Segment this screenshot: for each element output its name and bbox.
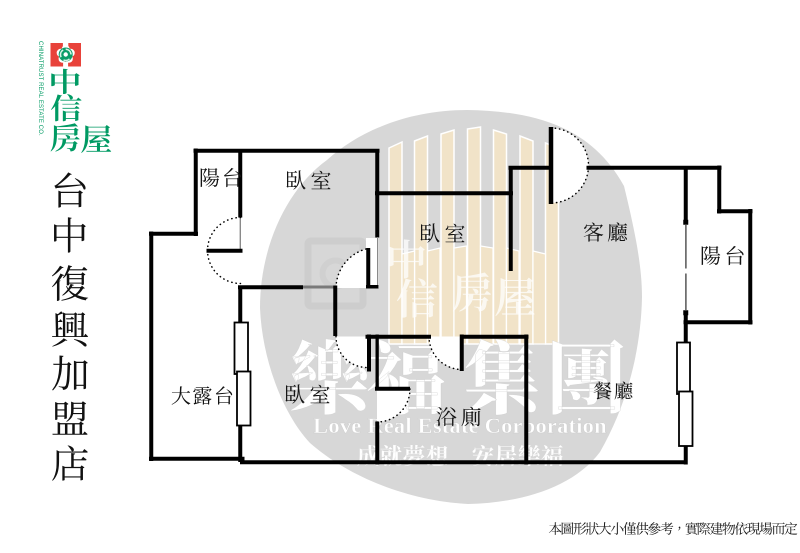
svg-text:CHINATRUST REAL ESTATE CO.: CHINATRUST REAL ESTATE CO. xyxy=(37,41,43,136)
svg-text:Love Real Estate Corporation: Love Real Estate Corporation xyxy=(313,413,607,438)
